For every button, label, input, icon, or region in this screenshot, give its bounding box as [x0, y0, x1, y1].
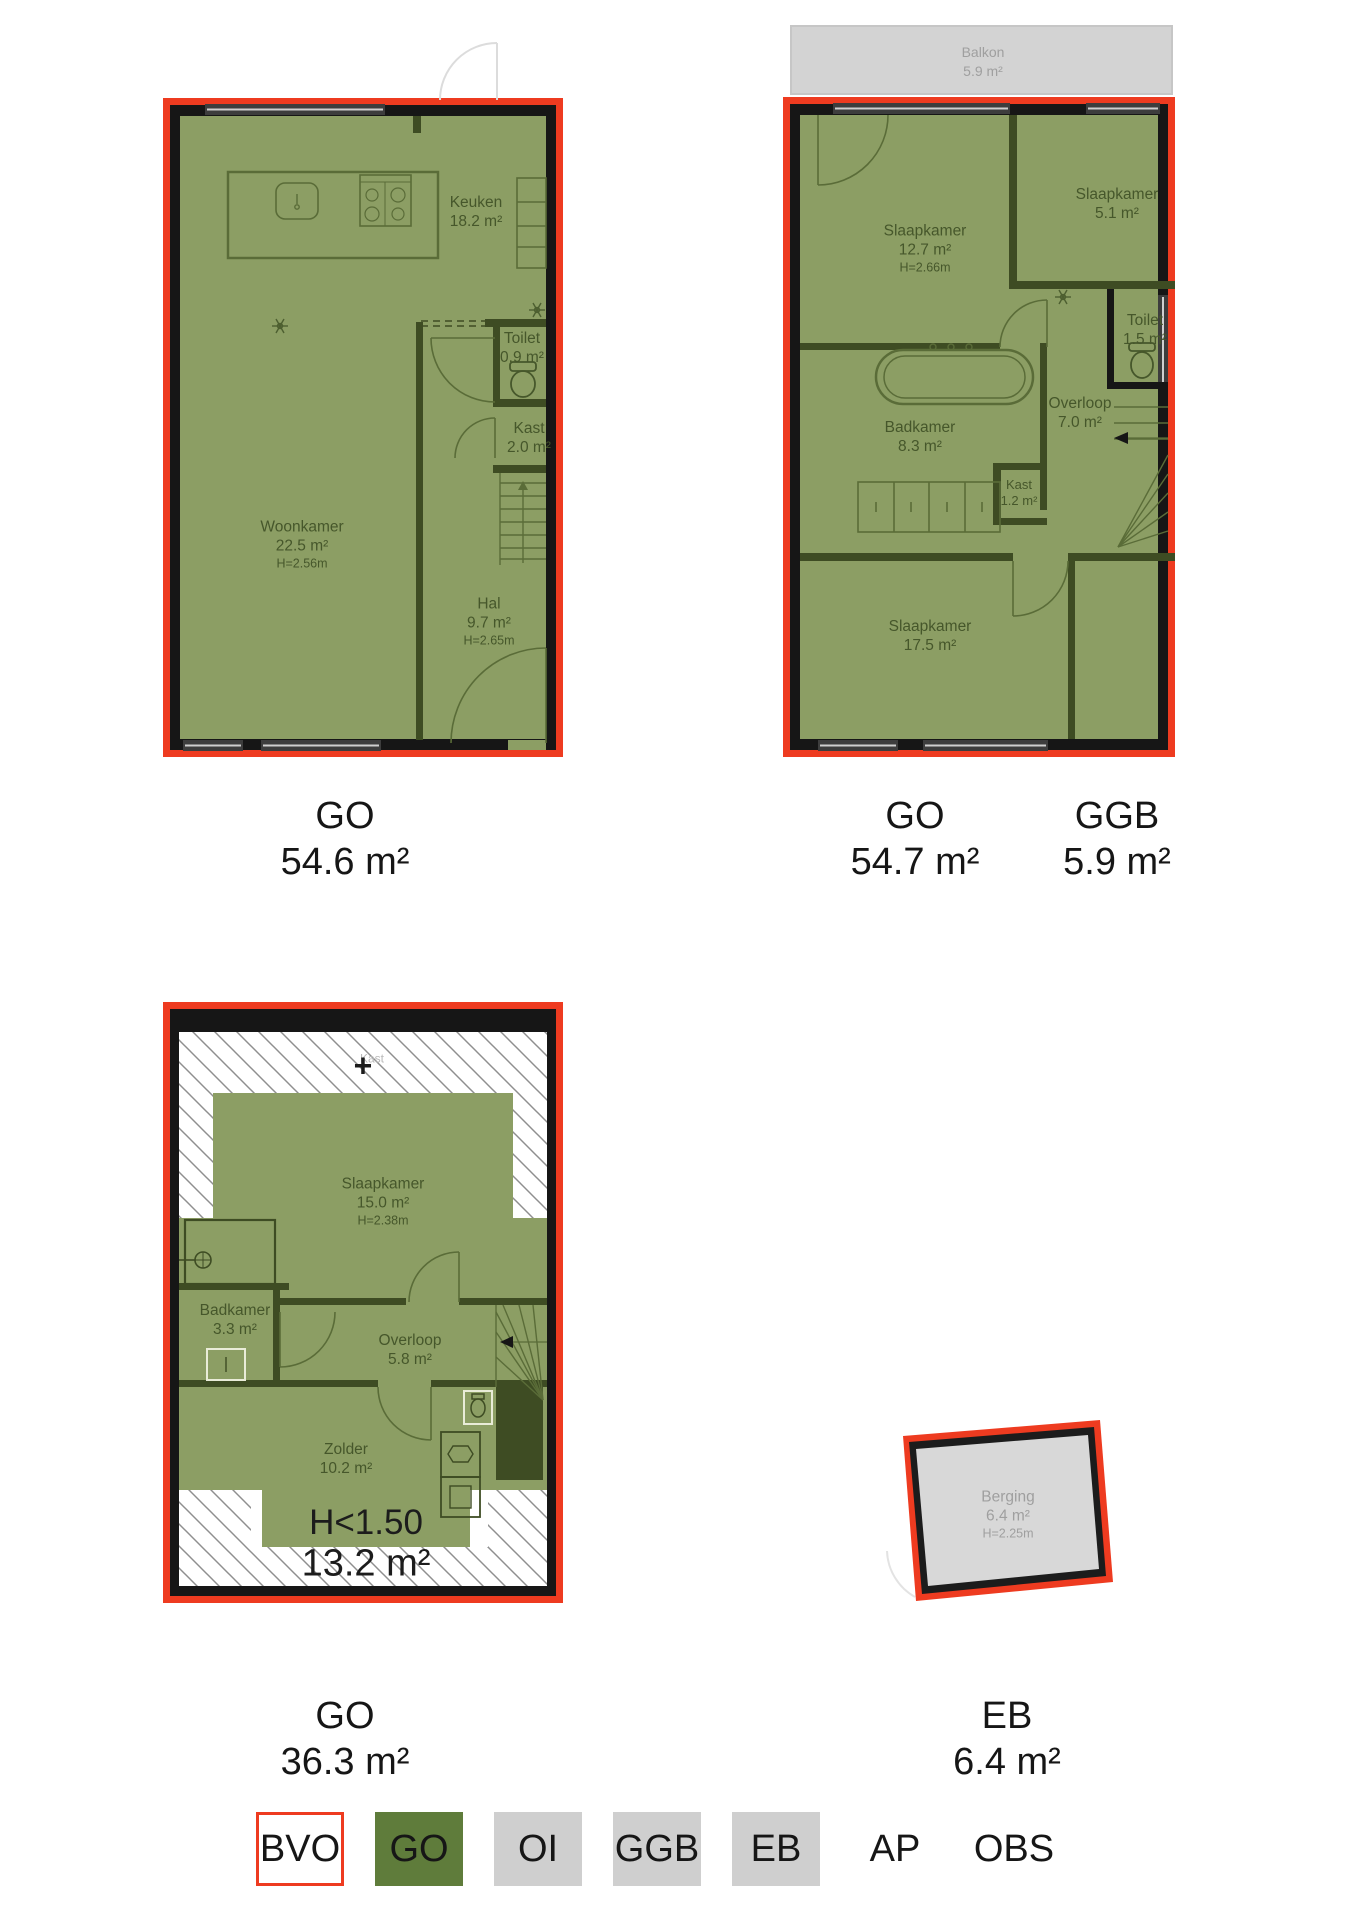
- caption-code: GO: [851, 793, 980, 839]
- floorplan-floor2: Slaapkamer 12.7 m² H=2.66m Slaapkamer 5.…: [783, 97, 1175, 757]
- caption-value: 5.9 m²: [1063, 839, 1171, 885]
- legend-item-oi: OI: [494, 1812, 582, 1886]
- legend: BVO GO OI GGB EB AP OBS: [256, 1812, 1058, 1886]
- caption-code: EB: [953, 1693, 1061, 1739]
- room-label-keuken: Keuken 18.2 m²: [450, 193, 503, 231]
- low-height-label: H<1.50: [309, 1503, 423, 1543]
- legend-item-go: GO: [375, 1812, 463, 1886]
- room-label-hal: Hal 9.7 m² H=2.65m: [463, 595, 514, 650]
- caption-value: 54.6 m²: [281, 839, 410, 885]
- caption-value: 54.7 m²: [851, 839, 980, 885]
- floor1-drawing: [163, 98, 563, 757]
- legend-item-bvo: BVO: [256, 1812, 344, 1886]
- room-label-kast: Kast 2.0 m²: [507, 419, 551, 457]
- floorplan-berging: Berging 6.4 m² H=2.25m: [895, 1415, 1120, 1605]
- balkon-area: Balkon 5.9 m²: [790, 25, 1173, 95]
- caption-code: GO: [281, 1693, 410, 1739]
- room-label-slaapkamer3: Slaapkamer 17.5 m²: [889, 617, 972, 655]
- caption-floor2-ggb: GGB 5.9 m²: [1063, 793, 1171, 885]
- legend-item-ap: AP: [851, 1812, 939, 1886]
- room-label-overloop2: Overloop 7.0 m²: [1049, 394, 1112, 432]
- room-label-slaapkamer2: Slaapkamer 5.1 m²: [1076, 185, 1159, 223]
- room-label-kast2: Kast 1.2 m²: [1001, 477, 1038, 509]
- understairs-area: [496, 1387, 543, 1480]
- room-label-toilet: Toilet 0.9 m²: [500, 329, 544, 367]
- room-label-slaapkamer1: Slaapkamer 12.7 m² H=2.66m: [884, 222, 967, 277]
- room-label-woonkamer: Woonkamer 22.5 m² H=2.56m: [260, 518, 343, 573]
- exterior-door-arc-icon: [440, 43, 497, 100]
- legend-item-obs: OBS: [970, 1812, 1058, 1886]
- caption-code: GGB: [1063, 793, 1171, 839]
- room-label-badkamer3: Badkamer 3.3 m²: [200, 1301, 271, 1339]
- room-label-badkamer2: Badkamer 8.3 m²: [885, 418, 956, 456]
- caption-floor3: GO 36.3 m²: [281, 1693, 410, 1785]
- room-label-zolder: Zolder 10.2 m²: [320, 1440, 373, 1478]
- low-height-area-label: 13.2 m²: [302, 1543, 431, 1586]
- caption-floor1: GO 54.6 m²: [281, 793, 410, 885]
- caption-berging: EB 6.4 m²: [953, 1693, 1061, 1785]
- room-label-berging: Berging 6.4 m² H=2.25m: [981, 1488, 1034, 1543]
- caption-value: 6.4 m²: [953, 1739, 1061, 1785]
- room-label-overloop3: Overloop 5.8 m²: [379, 1331, 442, 1369]
- floorplan-page: Keuken 18.2 m² Woonkamer 22.5 m² H=2.56m…: [0, 0, 1358, 1920]
- legend-item-ggb: GGB: [613, 1812, 701, 1886]
- caption-code: GO: [281, 793, 410, 839]
- caption-floor2-go: GO 54.7 m²: [851, 793, 980, 885]
- floorplan-floor1: Keuken 18.2 m² Woonkamer 22.5 m² H=2.56m…: [163, 98, 563, 757]
- room-label-slaapkamer: Slaapkamer 15.0 m² H=2.38m: [342, 1175, 425, 1230]
- legend-item-eb: EB: [732, 1812, 820, 1886]
- caption-value: 36.3 m²: [281, 1739, 410, 1785]
- room-label-toilet2: Toilet 1.5 m²: [1123, 311, 1167, 349]
- room-label-balkon: Balkon 5.9 m²: [962, 43, 1005, 81]
- exterior-door-arc-icon: [887, 1551, 915, 1597]
- plus-marker: +: [354, 1048, 373, 1085]
